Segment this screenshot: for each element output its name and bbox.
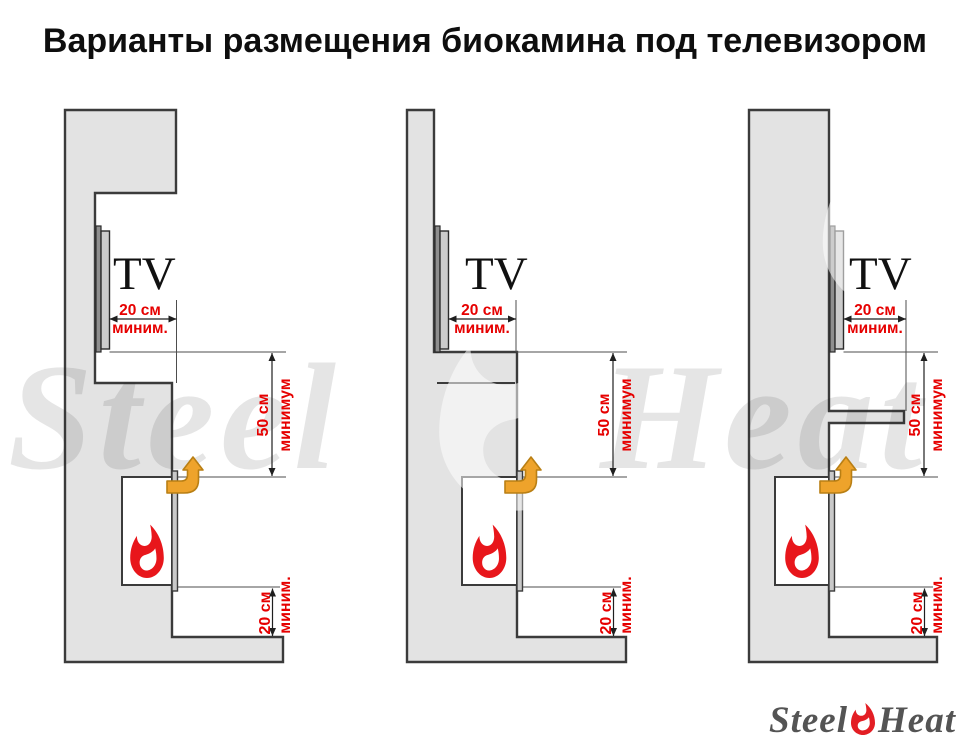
placement-diagram: Steel Heat 20 см миним. 50 см [0,0,970,749]
v2-tv-label: TV [465,248,528,300]
v2-dim20-bottom-value: 20 см [598,592,615,635]
watermark-heat-text: Heat [598,333,928,501]
variant2-tv-mount [435,226,440,352]
v1-dim50-value: 50 см [255,394,272,437]
v3-tv-label: TV [849,248,912,300]
v1-tv-label: TV [113,248,176,300]
v2-dim20-top-value: 20 см [461,302,503,319]
variant2-tv-panel [440,231,449,349]
v2-dim50-value: 50 см [596,394,613,437]
v3-dim20-bottom-qualifier: миним. [929,576,946,633]
v2-dim50-qualifier: минимум [618,378,635,451]
diagram-page: Варианты размещения биокамина под телеви… [0,0,970,749]
v1-dim20-bottom-value: 20 см [257,592,274,635]
logo-heat-text: Heat [878,699,956,743]
v3-dim20-top-qualifier: миним. [847,320,903,337]
v3-dim50-value: 50 см [907,394,924,437]
logo-flame-icon [845,697,881,743]
v1-dim20-top-value: 20 см [119,302,161,319]
v1-dim50-qualifier: минимум [277,378,294,451]
brand-logo: Steel Heat [769,697,956,745]
variant1-tv-panel [101,231,110,349]
logo-steel-text: Steel [769,699,848,743]
v2-dim20-bottom-qualifier: миним. [618,576,635,633]
v3-dim20-bottom-value: 20 см [909,592,926,635]
v1-dim20-top-qualifier: миним. [112,320,168,337]
v3-dim50-qualifier: минимум [929,378,946,451]
v3-dim20-top-value: 20 см [854,302,896,319]
v2-dim20-top-qualifier: миним. [454,320,510,337]
v1-dim20-bottom-qualifier: миним. [277,576,294,633]
